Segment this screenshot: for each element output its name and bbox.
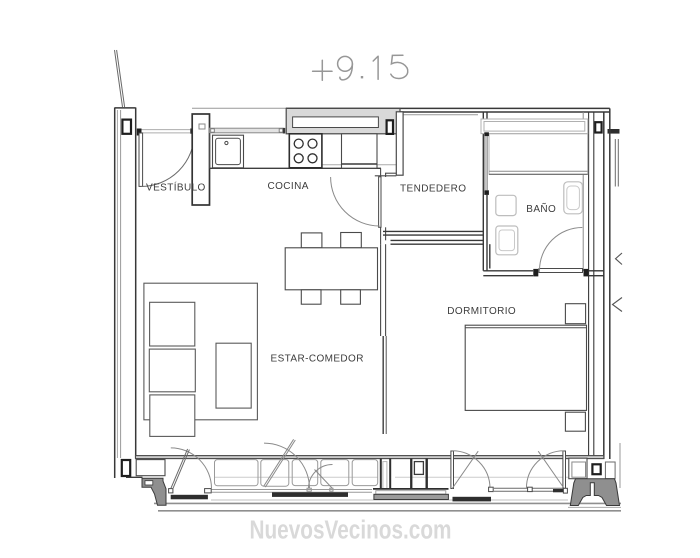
svg-text:TENDEDERO: TENDEDERO <box>400 184 466 195</box>
svg-text:COCINA: COCINA <box>268 181 309 192</box>
svg-text:VESTÍBULO: VESTÍBULO <box>146 181 206 194</box>
svg-text:ESTAR-COMEDOR: ESTAR-COMEDOR <box>271 354 364 365</box>
svg-text:DORMITORIO: DORMITORIO <box>447 306 516 317</box>
svg-text:BAÑO: BAÑO <box>526 202 556 215</box>
svg-text:NuevosVecinos.com: NuevosVecinos.com <box>250 517 452 545</box>
